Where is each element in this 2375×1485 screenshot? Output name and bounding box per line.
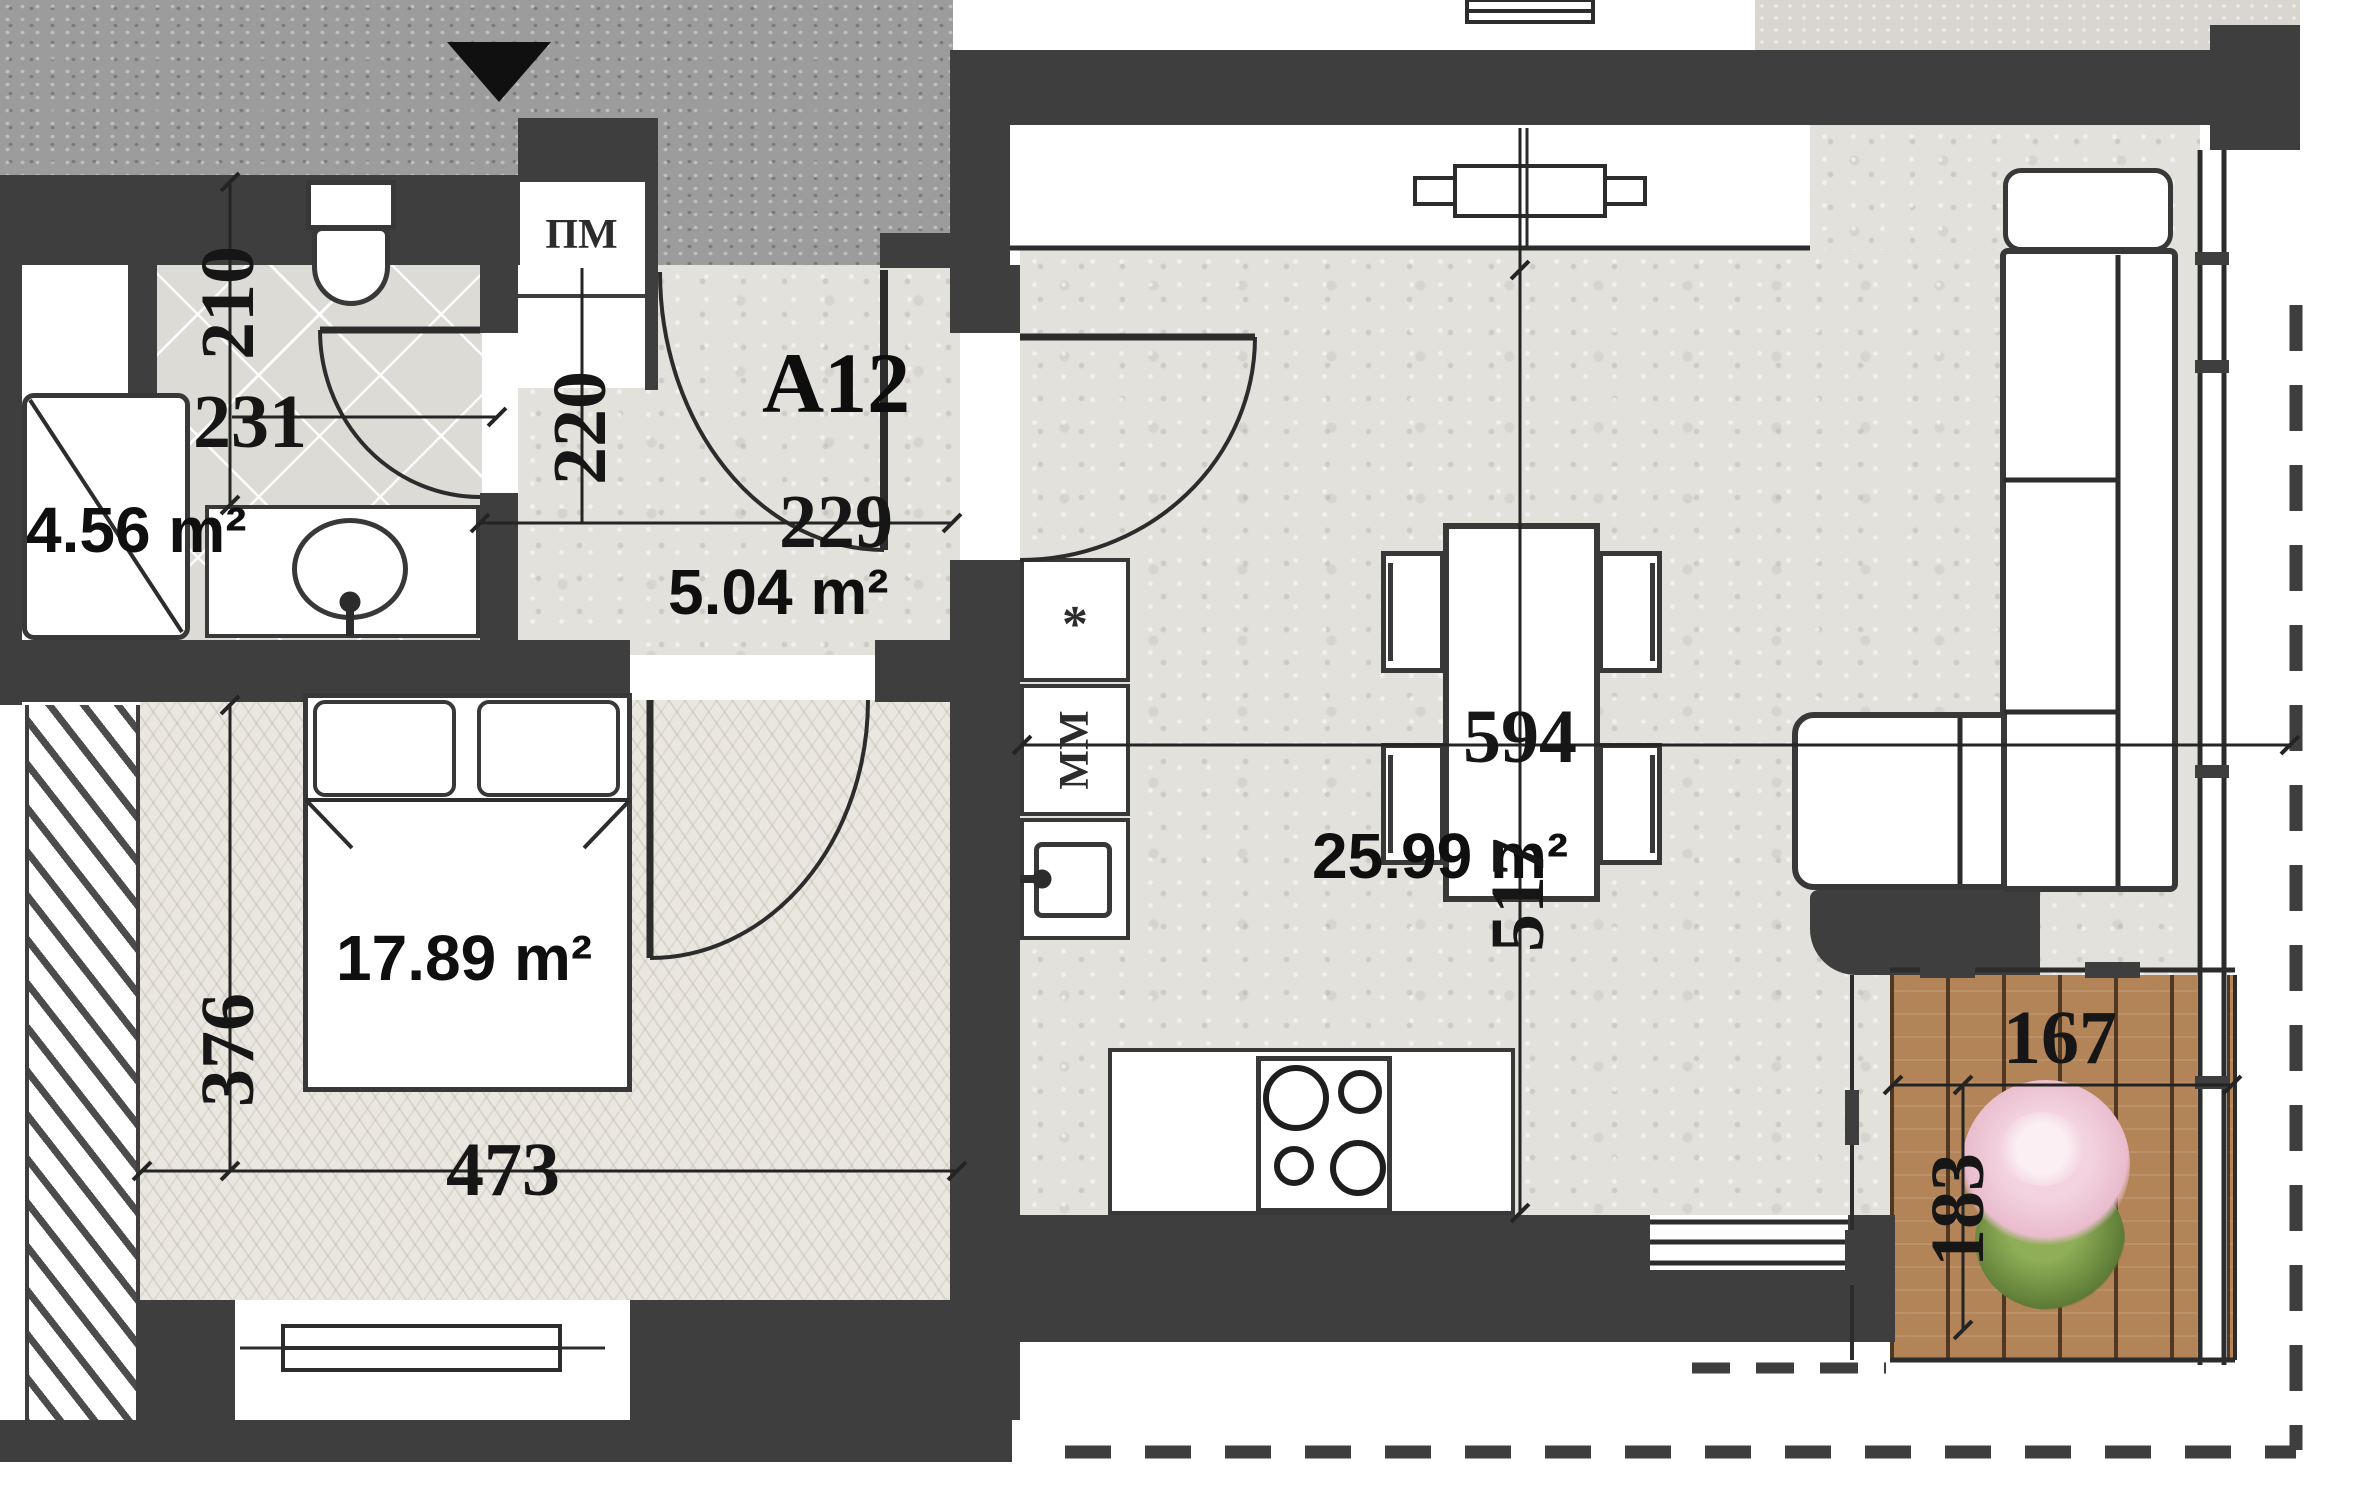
radiator-corridor	[1467, 0, 1593, 22]
dim-balcony-depth: 183	[1924, 1130, 1992, 1290]
fridge-cabinet-mark: *	[1020, 595, 1130, 655]
bed-lines	[306, 800, 630, 848]
dim-balcony-width: 167	[1985, 1003, 2135, 1073]
living-room-door	[1020, 337, 1255, 560]
bottom-window-sill	[1650, 1222, 1848, 1263]
floor-plan: A12 5.04 m² 4.56 m² 17.89 m² 25.99 m² ПМ…	[0, 0, 2375, 1485]
dim-living-depth: 517	[1481, 810, 1555, 980]
sink-faucet-icon	[340, 592, 360, 636]
sofa-lines	[1960, 255, 2118, 886]
washing-machine-label: ПМ	[518, 205, 645, 265]
stove-burners	[1266, 1068, 1383, 1193]
hall-area-label: 5.04 m²	[668, 560, 889, 624]
entrance-arrow-icon	[447, 42, 551, 102]
dishwasher-label: ММ	[1035, 699, 1115, 801]
right-window-glazing	[2195, 150, 2229, 1365]
bedroom-door	[650, 700, 868, 958]
dim-bedroom-depth: 376	[193, 970, 263, 1130]
dim-bathroom-width: 231	[175, 387, 325, 457]
dim-hall-depth: 220	[545, 353, 615, 503]
bathroom-door	[320, 330, 480, 497]
dim-bedroom-width: 473	[428, 1135, 578, 1205]
radiator-bedroom	[240, 1326, 605, 1370]
balcony-railing	[1065, 305, 2296, 1452]
dim-hall-width: 229	[761, 487, 911, 557]
dim-living-width: 594	[1445, 700, 1595, 774]
linework-layer	[0, 0, 2375, 1485]
apartment-code: A12	[762, 340, 910, 426]
bedroom-area-label: 17.89 m²	[336, 926, 592, 990]
radiator-living-niche	[1415, 128, 1645, 250]
kitchen-faucet-icon	[1020, 870, 1051, 888]
dim-bathroom-depth: 210	[193, 228, 263, 378]
bathroom-area-label: 4.56 m²	[26, 498, 247, 562]
